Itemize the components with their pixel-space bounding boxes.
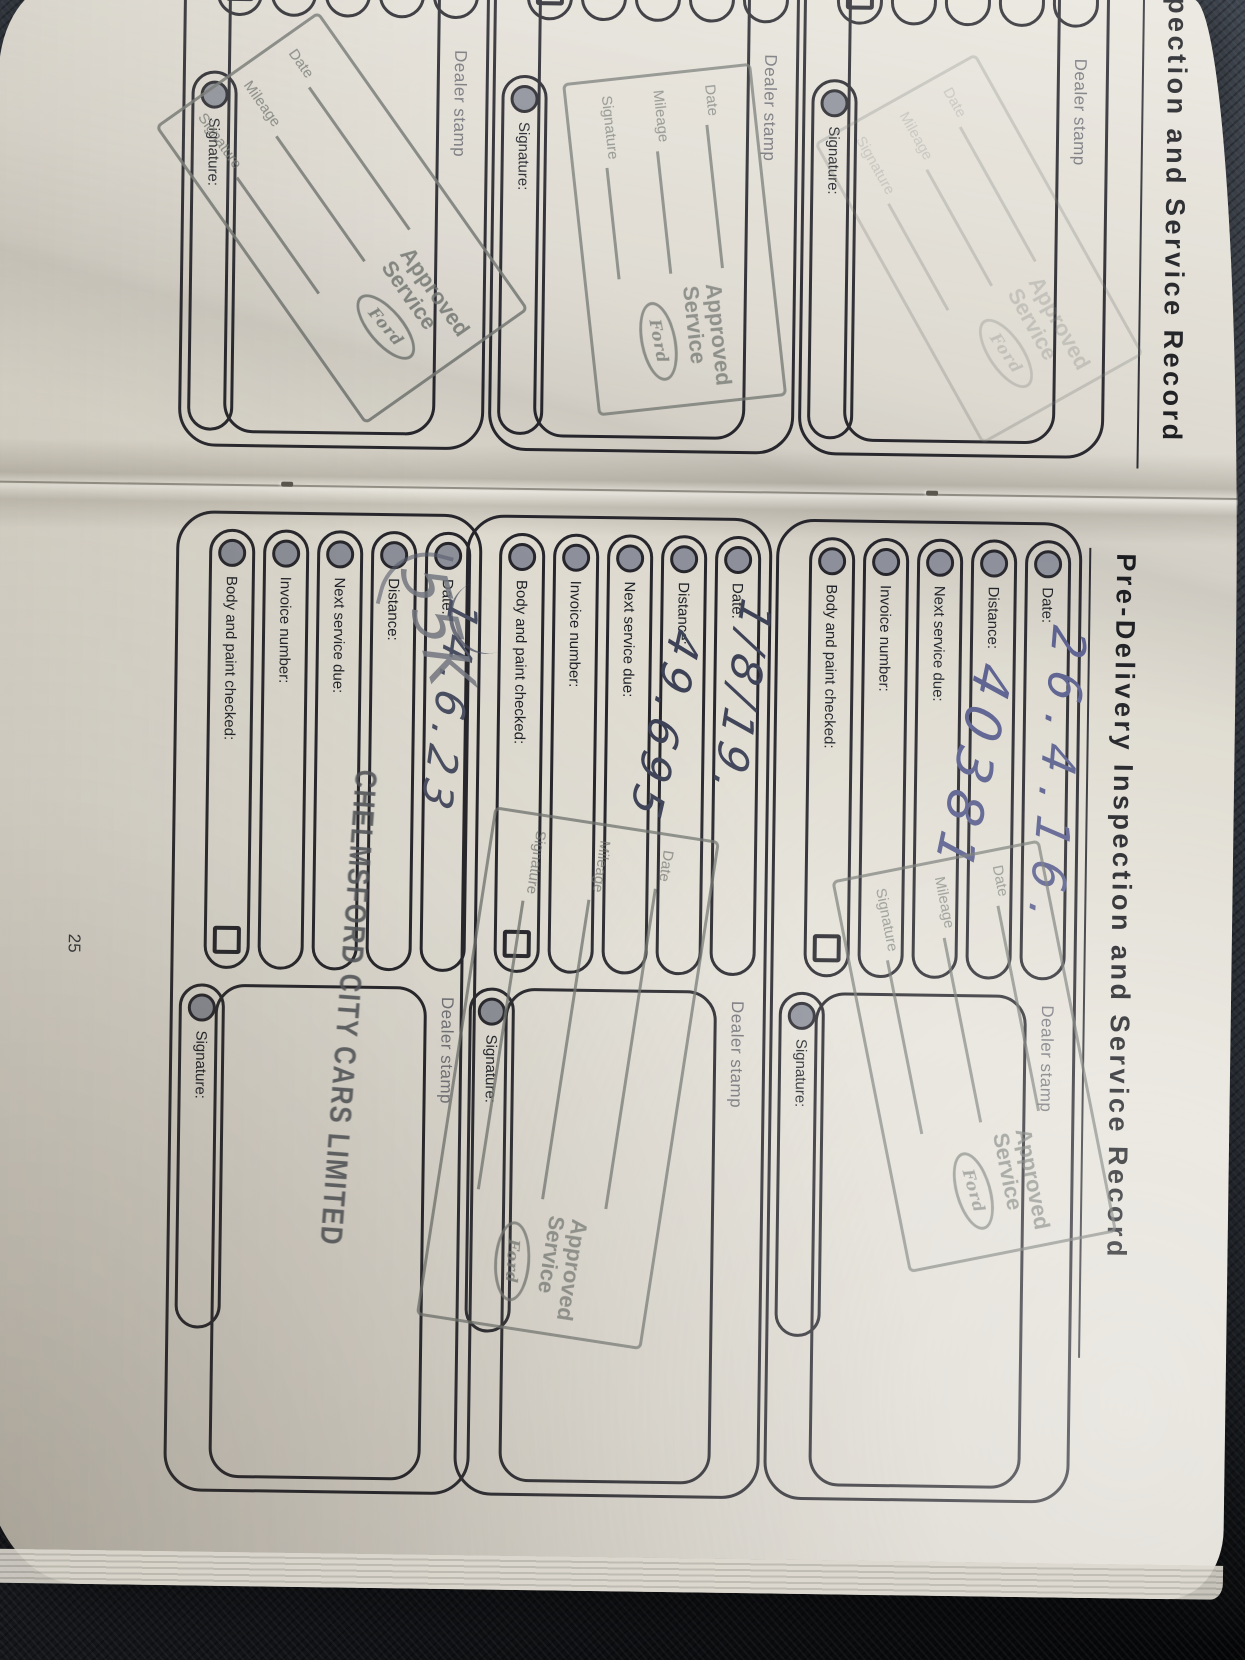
stamp-signature-row: Signature [872, 887, 937, 1135]
stamp-signature-row: Signature [598, 95, 635, 280]
photo-background: pection and Service Record Dealer stamp … [0, 0, 1245, 1660]
stamp-date-row: Date [702, 83, 739, 268]
field-bullet-icon [616, 544, 644, 572]
field-bullet-icon [872, 548, 900, 576]
field-bullet-icon [562, 544, 590, 572]
field-bullet-icon [326, 540, 354, 568]
stamp-date-row: Date [604, 849, 677, 1212]
signature-field: Signature: [174, 983, 225, 1329]
field-bullet-icon [788, 1002, 816, 1030]
checkbox [213, 926, 241, 954]
page-number: 25 [64, 934, 84, 953]
signature-field: Signature: [774, 992, 825, 1338]
stamp-mileage-row: Mileage [541, 839, 614, 1202]
field-bullet-icon [818, 547, 846, 575]
stamp-date-row: Date [989, 864, 1054, 1112]
stamp-signature-row: Signature [477, 829, 550, 1192]
field-bullet-icon [508, 543, 536, 571]
field-bullet-icon [272, 539, 300, 567]
field-bullet-icon [926, 549, 954, 577]
dealer-stamp-label: Dealer stamp [759, 54, 780, 161]
field-bullet-icon [188, 993, 216, 1021]
left-page: pection and Service Record Dealer stamp … [0, 0, 1245, 470]
checkbox [813, 934, 841, 962]
body-paint-field: Body and paint checked: [203, 529, 255, 970]
ford-logo-icon: Ford [492, 1220, 533, 1302]
dealer-stamp-label: Dealer stamp [725, 1001, 746, 1108]
field-bullet-icon [670, 545, 698, 573]
signature-field: Signature: [497, 75, 548, 436]
right-page: Pre-Delivery Inspection and Service Reco… [0, 483, 1238, 1600]
field-bullet-icon [510, 85, 538, 113]
dealer-stamp-label: Dealer stamp [1069, 59, 1090, 166]
field-bullet-icon [218, 539, 246, 567]
left-header-rule [1136, 0, 1145, 469]
service-book: pection and Service Record Dealer stamp … [0, 0, 1245, 1600]
invoice-number-field: Invoice number: [257, 529, 309, 970]
approved-service-stamp: Date Mileage Signature ApprovedService F… [562, 63, 787, 417]
field-bullet-icon [980, 549, 1008, 577]
right-page-header: Pre-Delivery Inspection and Service Reco… [1100, 553, 1141, 1260]
field-bullet-icon [724, 546, 752, 574]
dealer-stamp-label: Dealer stamp [449, 50, 470, 157]
stamp-mileage-row: Mileage [930, 875, 995, 1123]
left-page-header: pection and Service Record [1156, 0, 1193, 444]
stamp-mileage-row: Mileage [896, 109, 1006, 287]
stamp-mileage-row: Mileage [240, 78, 377, 263]
stamp-mileage-row: Mileage [650, 89, 687, 274]
ford-logo-icon: Ford [633, 298, 684, 383]
field-bullet-icon [820, 89, 848, 117]
field-bullet-icon [1034, 550, 1062, 578]
